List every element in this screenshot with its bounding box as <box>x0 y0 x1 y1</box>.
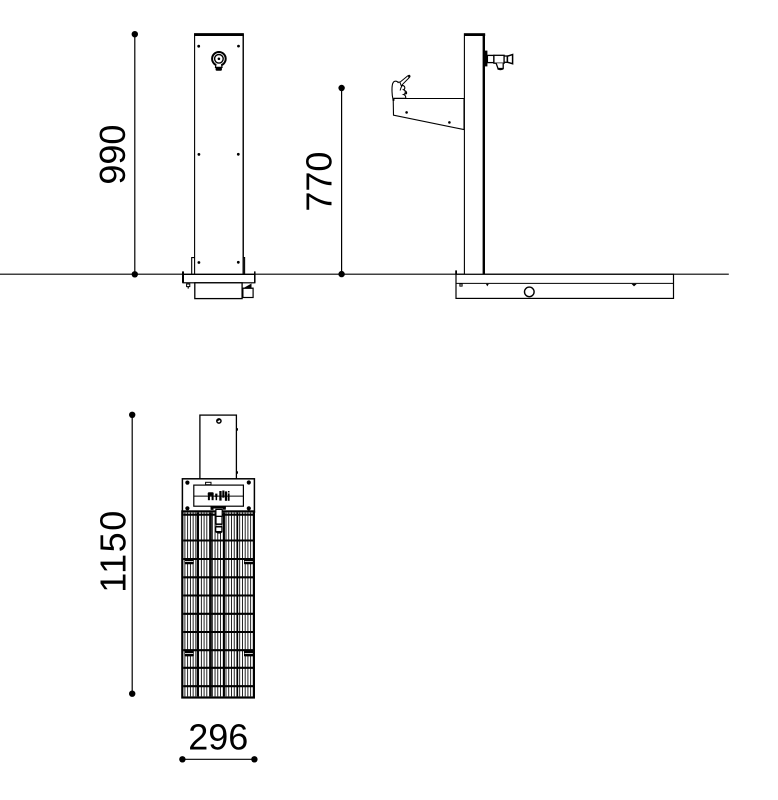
svg-text:990: 990 <box>92 125 133 185</box>
svg-text:770: 770 <box>299 152 340 212</box>
svg-text:1150: 1150 <box>92 509 133 592</box>
svg-text:296: 296 <box>188 717 248 758</box>
